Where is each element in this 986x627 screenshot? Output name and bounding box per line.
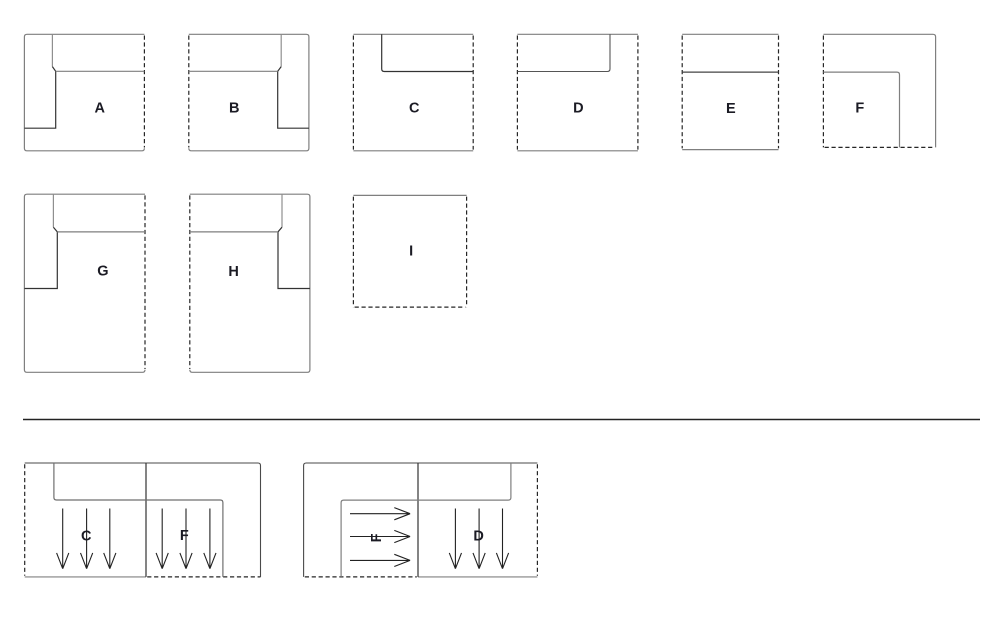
svg-text:F: F bbox=[369, 533, 385, 542]
svg-text:A: A bbox=[95, 101, 106, 117]
svg-text:C: C bbox=[409, 101, 420, 117]
svg-text:D: D bbox=[473, 529, 483, 545]
svg-text:G: G bbox=[97, 263, 108, 279]
svg-text:F: F bbox=[855, 101, 864, 117]
svg-text:F: F bbox=[180, 528, 189, 544]
svg-text:E: E bbox=[726, 101, 736, 117]
svg-text:B: B bbox=[229, 101, 239, 117]
svg-text:H: H bbox=[228, 264, 238, 280]
svg-text:C: C bbox=[81, 529, 92, 545]
svg-text:I: I bbox=[409, 243, 413, 259]
svg-text:D: D bbox=[573, 101, 583, 117]
